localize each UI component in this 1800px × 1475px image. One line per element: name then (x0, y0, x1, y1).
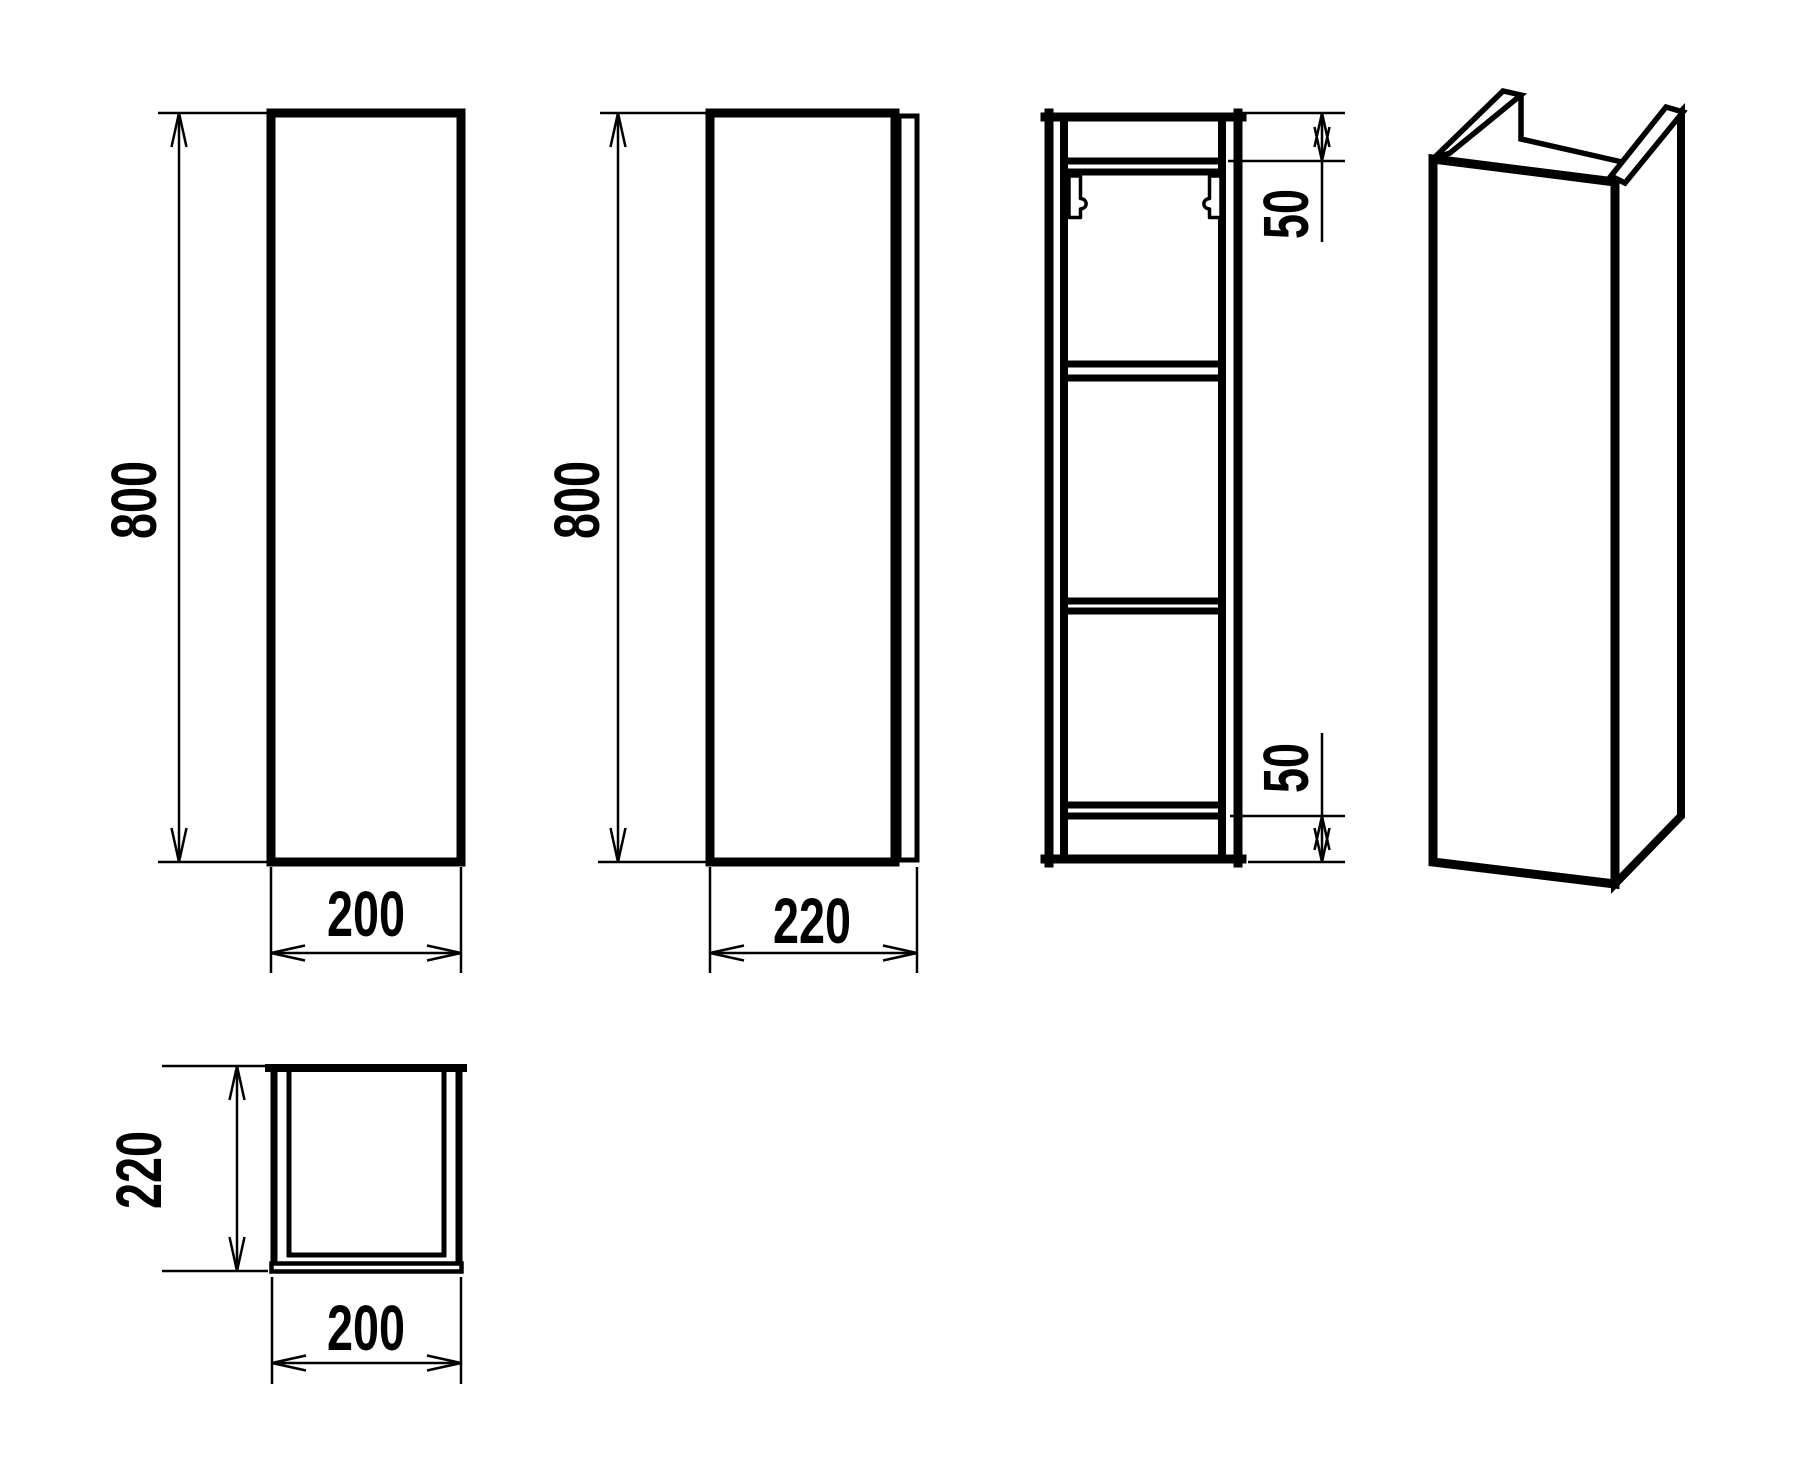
iso-right-face (1615, 113, 1681, 884)
dim-label-front-height: 800 (98, 461, 170, 539)
side-view: 800 220 (541, 113, 917, 973)
section-bottom-gap-dimension: 50 (1230, 733, 1345, 862)
isometric-view (1433, 91, 1683, 884)
technical-drawing-canvas: 800 200 800 220 (0, 0, 1800, 1475)
dim-label-section-bottom-gap: 50 (1250, 743, 1322, 793)
dim-label-top-depth: 220 (103, 1131, 175, 1209)
top-width-dimension: 200 (272, 1277, 461, 1384)
door-edge-strip (899, 116, 917, 860)
top-view: 220 200 (103, 1064, 463, 1384)
side-height-dimension: 800 (541, 113, 706, 862)
dim-label-side-height: 800 (541, 461, 613, 539)
front-view-outline (271, 113, 461, 862)
side-view-outline (710, 113, 895, 862)
side-depth-dimension: 220 (710, 867, 917, 973)
section-top-gap-dimension: 50 (1228, 113, 1345, 242)
iso-left-panel-top (1433, 91, 1521, 159)
dim-label-front-width: 200 (327, 878, 405, 950)
door-panel-strip (272, 1264, 462, 1272)
technical-drawing-page: 800 200 800 220 (0, 0, 1800, 1475)
dim-label-side-depth: 220 (773, 885, 851, 957)
dim-label-top-width: 200 (327, 1292, 405, 1364)
hanging-bracket-left (1069, 176, 1086, 218)
hanging-bracket-right (1204, 176, 1221, 218)
iso-front-face (1433, 159, 1615, 884)
front-height-dimension: 800 (98, 113, 267, 862)
section-view: 50 50 (1045, 113, 1345, 863)
top-depth-dimension: 220 (103, 1066, 268, 1271)
front-width-dimension: 200 (271, 867, 461, 973)
dim-label-section-top-gap: 50 (1250, 189, 1322, 239)
front-view: 800 200 (98, 113, 461, 973)
iso-top-opening-edge (1521, 95, 1622, 162)
